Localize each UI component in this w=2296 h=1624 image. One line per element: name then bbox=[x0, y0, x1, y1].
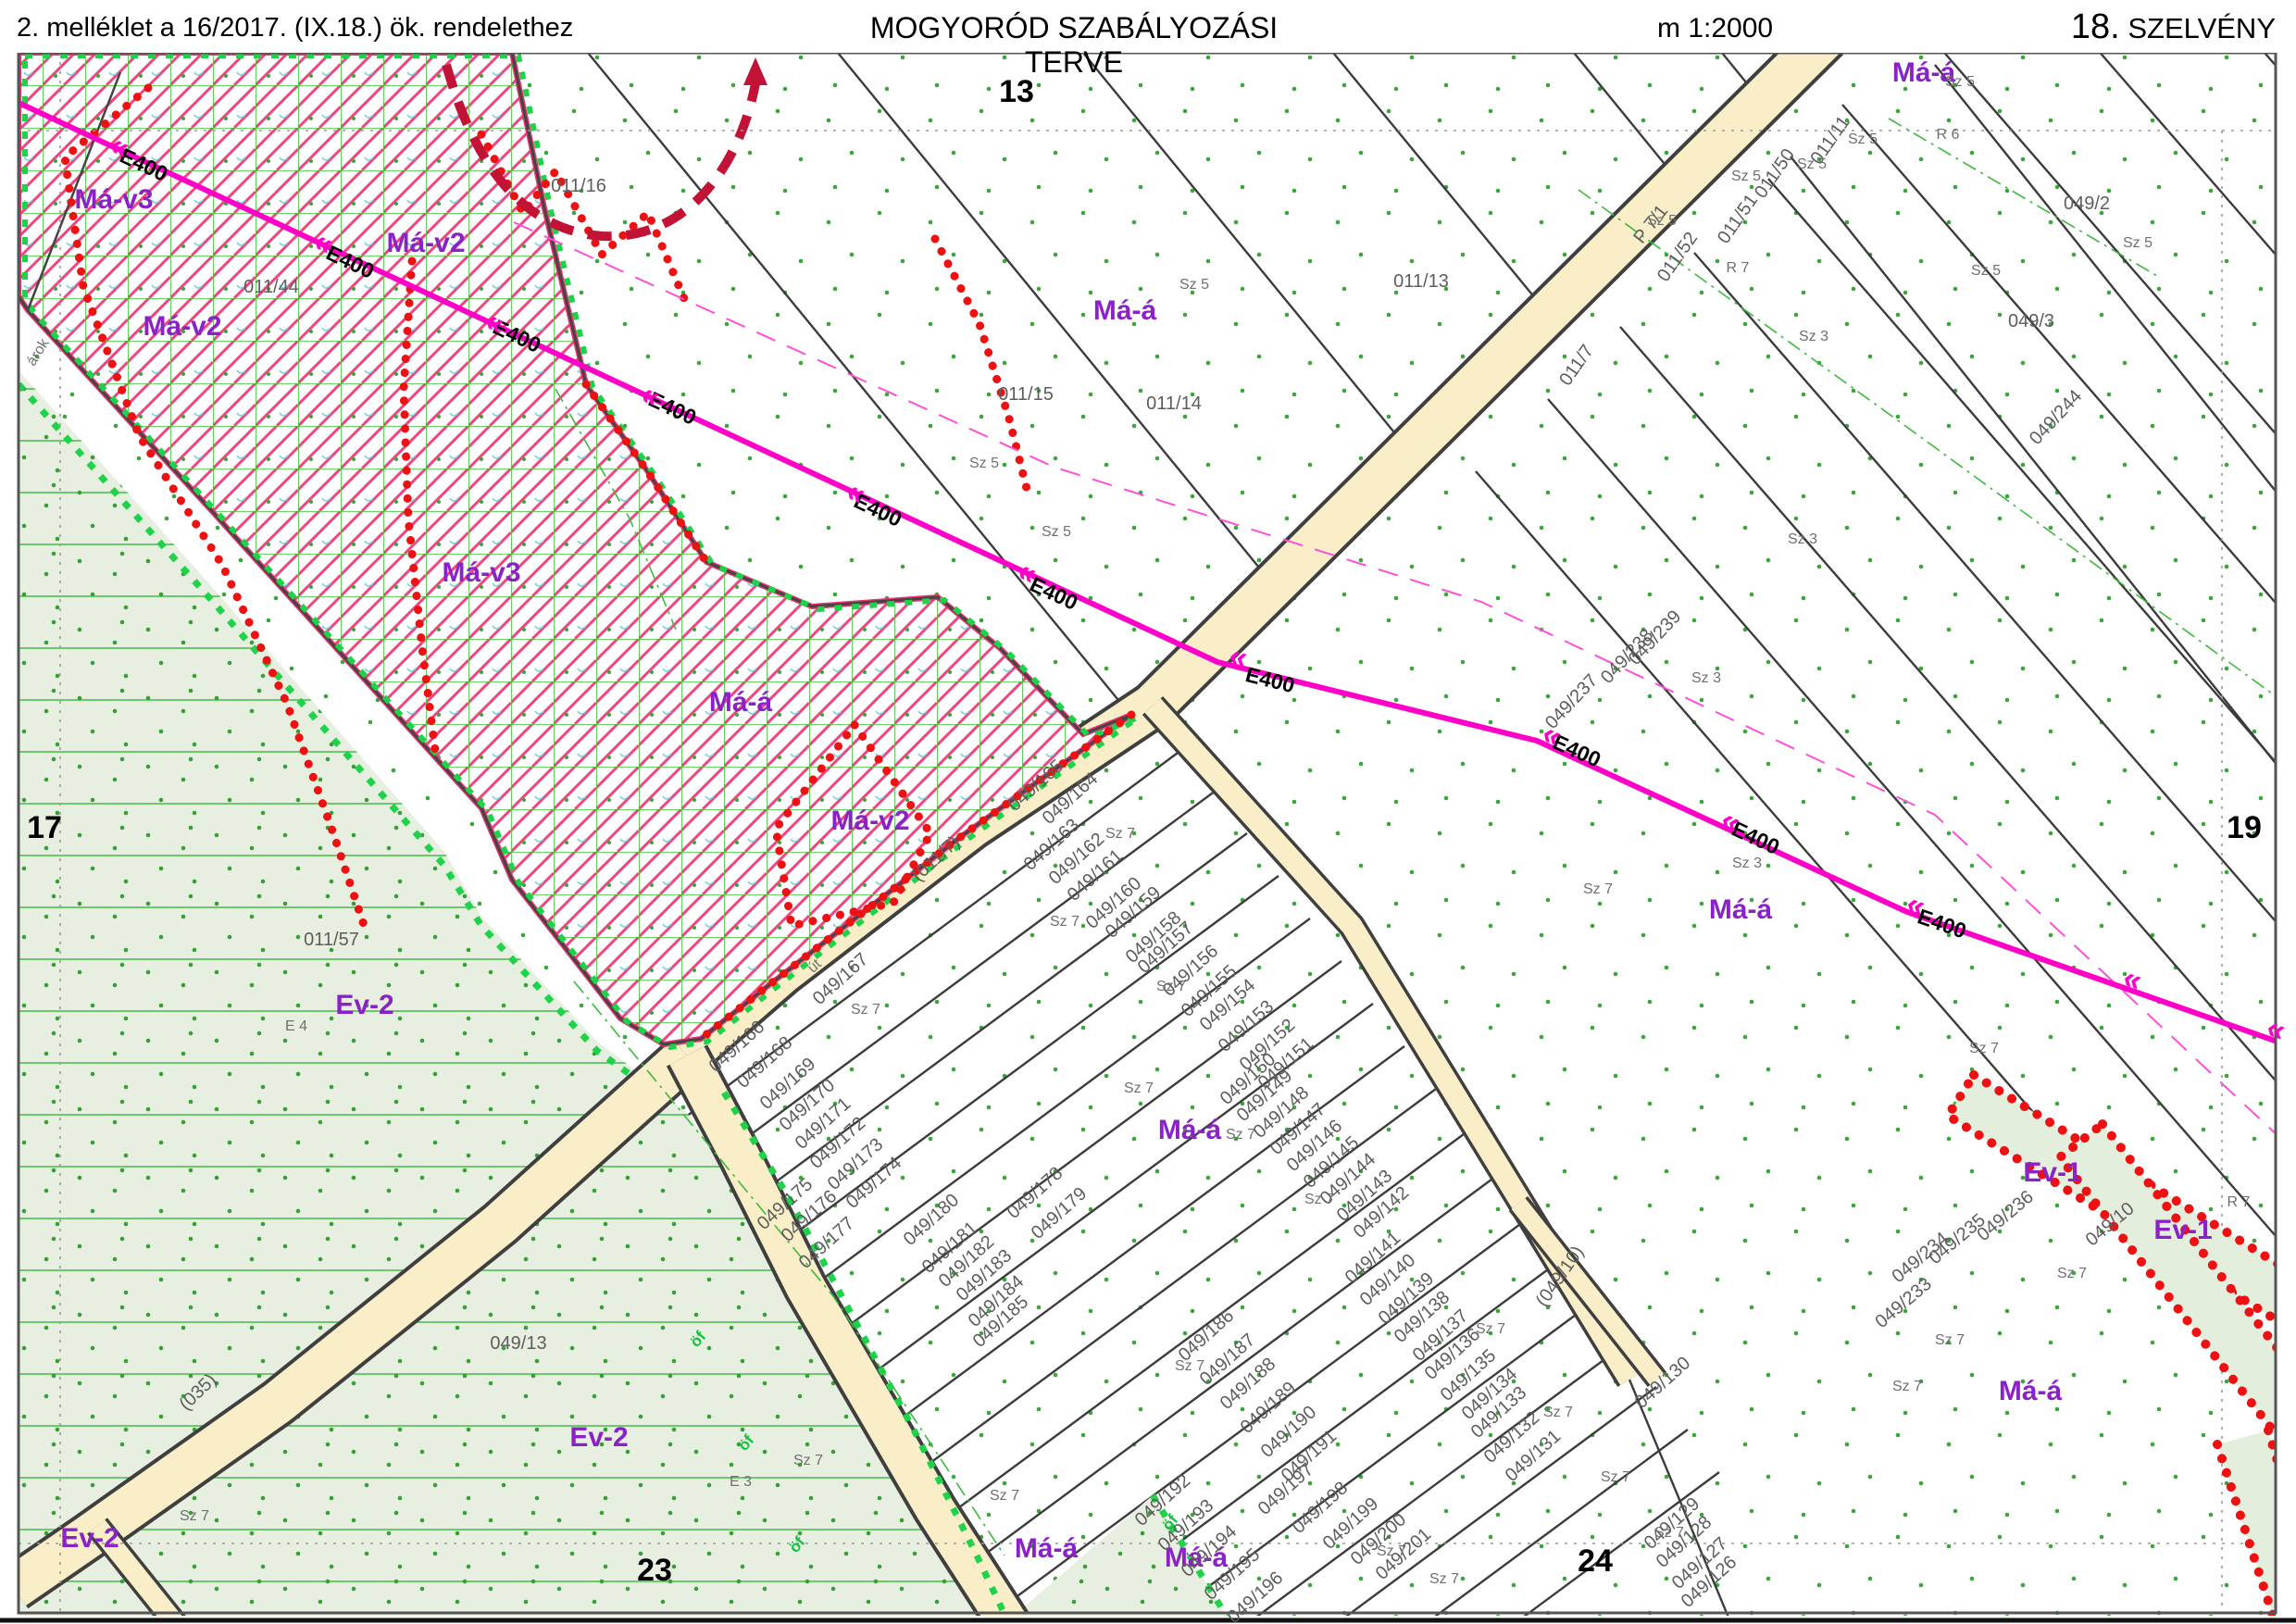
map-label: Sz 3 bbox=[1799, 329, 1828, 344]
map-label: Sz 7 bbox=[1583, 881, 1613, 897]
map-label: Sz 7 bbox=[2057, 1266, 2087, 1281]
map-label: Ev-2 bbox=[569, 1422, 628, 1453]
map-label: Sz 5 bbox=[1179, 277, 1209, 293]
map-label: 011/57 bbox=[304, 930, 359, 950]
map-label: Sz 3 bbox=[1691, 670, 1721, 686]
map-label: E 4 bbox=[285, 1018, 307, 1034]
map-label: 011/13 bbox=[1393, 271, 1449, 292]
map-label: Má-v2 bbox=[143, 311, 221, 342]
map-label: 011/44 bbox=[243, 277, 299, 297]
map-label: 011/14 bbox=[1146, 394, 1202, 414]
map-label: Má-á bbox=[1709, 894, 1773, 925]
annex-reference: 2. melléklet a 16/2017. (IX.18.) ök. ren… bbox=[17, 13, 573, 44]
map-label: Sz 3 bbox=[1788, 531, 1817, 547]
map-label: E 3 bbox=[730, 1474, 752, 1490]
map-label: 011/15 bbox=[998, 384, 1054, 405]
map-label: 17 bbox=[27, 810, 62, 845]
map-label: Sz 7 bbox=[1304, 1192, 1334, 1207]
sheet-number: 18. SZELVÉNY bbox=[2071, 7, 2276, 47]
map-label: Má-á bbox=[1015, 1533, 1079, 1564]
map-label: Sz 7 bbox=[990, 1488, 1019, 1504]
map-label: Sz 7 bbox=[851, 1002, 880, 1018]
map-label: Sz 7 bbox=[1175, 1358, 1204, 1374]
map-label: Sz 7 bbox=[1654, 1525, 1684, 1541]
map-label: 19 bbox=[2227, 810, 2262, 845]
map-label: Má-á bbox=[709, 687, 773, 718]
map-label: Sz 7 bbox=[1935, 1332, 1965, 1348]
map-label: Sz 5 bbox=[1647, 213, 1677, 229]
plan-title: MOGYORÓD SZABÁLYOZÁSI TERVE bbox=[861, 11, 1287, 80]
map-label: Sz 7 bbox=[1892, 1379, 1922, 1394]
map-label: Ev-1 bbox=[2153, 1215, 2212, 1245]
map-scale: m 1:2000 bbox=[1657, 13, 1773, 44]
map-canvas: 1317192324Má-v3Má-v2Má-v2Má-v3Má-v2Má-áM… bbox=[0, 0, 2296, 1624]
map-label: Sz 5 bbox=[1971, 263, 2001, 279]
map-label: Má-v3 bbox=[442, 557, 520, 588]
title-bar: 2. melléklet a 16/2017. (IX.18.) ök. ren… bbox=[0, 0, 2296, 53]
map-label: Sz 7 bbox=[1105, 826, 1135, 842]
map-label: Sz 5 bbox=[1945, 74, 1975, 90]
map-label: Má-á bbox=[1093, 295, 1157, 326]
map-label: Sz 5 bbox=[1731, 169, 1761, 184]
map-label: 049/13 bbox=[490, 1333, 546, 1354]
map-label: 011/16 bbox=[551, 176, 606, 196]
map-label: Sz 7 bbox=[1124, 1081, 1154, 1096]
map-label: 24 bbox=[1578, 1543, 1613, 1579]
map-label: R 7 bbox=[1727, 260, 1750, 276]
map-label: R 7 bbox=[2227, 1194, 2251, 1210]
map-label: Sz 5 bbox=[1848, 131, 1878, 147]
plan-page: 2. melléklet a 16/2017. (IX.18.) ök. ren… bbox=[0, 0, 2296, 1624]
map-label: Ev-2 bbox=[335, 990, 393, 1020]
map-label: Sz 7 bbox=[1476, 1321, 1505, 1337]
map-label: Sz 7 bbox=[793, 1453, 823, 1468]
map-label: Sz 7 bbox=[1429, 1571, 1459, 1587]
map-label: Sz 7 bbox=[1969, 1041, 1999, 1056]
map-label: 23 bbox=[637, 1553, 672, 1588]
map-label: Sz 5 bbox=[1042, 524, 1071, 540]
map-label: Sz 5 bbox=[969, 456, 999, 471]
map-label: Sz 7 bbox=[1156, 979, 1186, 994]
map-label: Sz 7 bbox=[1601, 1469, 1630, 1485]
map-label: Má-á bbox=[1158, 1115, 1222, 1145]
map-label: R 6 bbox=[1937, 127, 1960, 143]
map-label: Má-v2 bbox=[386, 228, 465, 258]
map-label: Sz 7 bbox=[180, 1508, 209, 1524]
map-label: 049/2 bbox=[2064, 194, 2110, 214]
map-label: Má-v2 bbox=[830, 806, 909, 836]
map-label: Sz 7 bbox=[1543, 1405, 1573, 1420]
map-label: Ev-1 bbox=[2023, 1157, 2081, 1188]
map-label: Má-á bbox=[1999, 1376, 2063, 1406]
map-label: Sz 3 bbox=[1732, 856, 1762, 871]
map-label: Sz 7 bbox=[1377, 1543, 1406, 1559]
map-label: Sz 7 bbox=[1226, 1127, 1255, 1143]
map-label: Sz 7 bbox=[1050, 914, 1079, 930]
map-label: Ev-2 bbox=[60, 1523, 119, 1554]
map-label: Sz 5 bbox=[2123, 235, 2152, 251]
map-label: Má-v3 bbox=[74, 184, 153, 215]
map-label: Sz 5 bbox=[1797, 156, 1827, 172]
map-label: 049/3 bbox=[2008, 311, 2054, 331]
